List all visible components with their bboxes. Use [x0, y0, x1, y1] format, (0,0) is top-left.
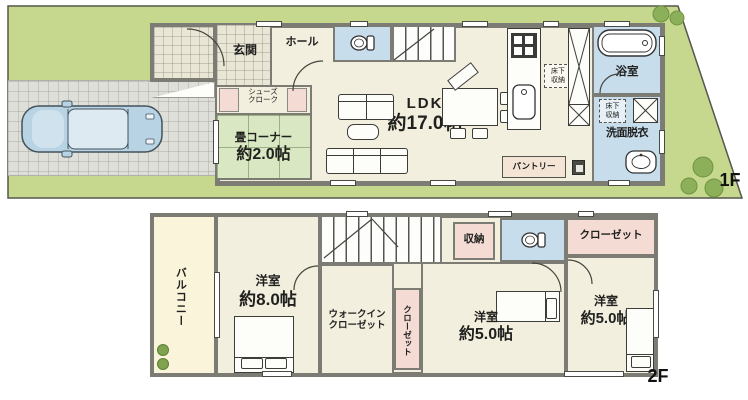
- tatami-label: 畳コーナー 約2.0帖: [216, 128, 311, 164]
- window: [608, 180, 630, 186]
- window: [578, 211, 594, 217]
- window: [430, 180, 456, 186]
- window: [256, 21, 282, 27]
- window: [350, 21, 368, 27]
- bedroom-8-label-line2: 約8.0帖: [239, 290, 297, 309]
- sofa-icon: [338, 94, 394, 120]
- walk-in-closet-label-line2: クローゼット: [328, 320, 385, 331]
- bedroom-5-right-label-line1: 洋室: [594, 294, 618, 308]
- toilet-icon: [521, 230, 547, 250]
- underfloor-storage-washroom-line2: 収納: [606, 112, 620, 119]
- window: [604, 21, 630, 27]
- cross-box: [568, 104, 590, 126]
- room-genkan-label: 玄関: [222, 44, 268, 57]
- window: [346, 211, 368, 217]
- window: [213, 120, 219, 164]
- window: [653, 290, 659, 338]
- bedroom-5-right-label-line2: 約5.0帖: [581, 310, 632, 327]
- underfloor-storage-washroom: 床下 収納: [599, 99, 626, 123]
- pantry-label: パントリー: [504, 162, 564, 172]
- tall-cabinet: [568, 28, 590, 106]
- coffee-table-icon: [347, 124, 379, 140]
- balcony-label: バルコニー: [174, 252, 186, 342]
- chair-icon: [472, 128, 488, 139]
- stairs-icon-1f: [392, 25, 456, 62]
- walk-in-closet-label-line1: ウォークイン: [328, 309, 385, 320]
- bedroom-8-label-line1: 洋室: [255, 274, 280, 288]
- room-hall-label: ホール: [278, 36, 326, 48]
- washroom-label: 洗面脱衣: [594, 127, 660, 139]
- window: [659, 130, 665, 154]
- stairs-icon-2f: [320, 215, 442, 264]
- toilet-icon: [350, 33, 376, 53]
- shoes-cloak-shelf: [287, 88, 307, 112]
- bedroom-5-center-label-line1: 洋室: [474, 310, 498, 324]
- closet-top-right-label: クローゼット: [568, 230, 654, 242]
- window: [462, 21, 488, 27]
- window: [262, 371, 292, 377]
- floor-plan-canvas: 玄関 ホール シューズ クローク 畳コーナー 約2.0帖 LDK 約17.0帖: [0, 0, 748, 400]
- shoes-cloak-label: シューズ クローク: [240, 88, 286, 105]
- car-icon: [16, 100, 168, 158]
- shoes-cloak-label-line2: クローク: [248, 95, 278, 104]
- floor-label-1f: 1F: [712, 170, 748, 190]
- window: [564, 371, 624, 377]
- tatami-label-line2: 約2.0帖: [236, 146, 290, 163]
- window: [214, 272, 220, 338]
- bathroom-label: 浴室: [600, 66, 654, 79]
- sofa-icon: [326, 148, 408, 174]
- walk-in-closet-label: ウォークイン クローゼット: [320, 310, 394, 331]
- tatami-label-line1: 畳コーナー: [235, 132, 293, 144]
- window: [543, 21, 559, 27]
- storage-label: 収納: [454, 234, 494, 246]
- window: [488, 211, 512, 217]
- closet-side-label: クローゼット: [402, 294, 412, 366]
- shoes-cloak-shelf: [219, 88, 239, 112]
- window: [330, 180, 356, 186]
- bedroom-5-center-label: 洋室 約5.0帖: [426, 308, 546, 344]
- bed-icon: [626, 308, 654, 372]
- window: [659, 36, 665, 56]
- underfloor-storage-kitchen-line1: 床下: [551, 68, 565, 75]
- ldk-label-line1: LDK: [407, 95, 444, 112]
- underfloor-storage-kitchen-line2: 収納: [551, 77, 565, 84]
- floor-label-2f: 2F: [640, 366, 676, 386]
- bedroom-5-center-label-line2: 約5.0帖: [459, 326, 513, 343]
- bed-icon: [234, 316, 294, 373]
- bathtub-icon: [597, 29, 657, 57]
- plant-icon: [156, 344, 170, 372]
- stove-icon: [511, 33, 537, 58]
- washing-machine-icon: [633, 98, 658, 123]
- meter-box: [572, 160, 585, 175]
- dining-table-icon: [442, 88, 498, 126]
- underfloor-storage-washroom-line1: 床下: [606, 103, 620, 110]
- entrance-porch: [150, 23, 217, 82]
- washbasin-icon: [625, 150, 657, 174]
- bedroom-8-label: 洋室 約8.0帖: [218, 272, 318, 310]
- kitchen-sink-icon: [512, 84, 536, 120]
- chair-icon: [450, 128, 466, 139]
